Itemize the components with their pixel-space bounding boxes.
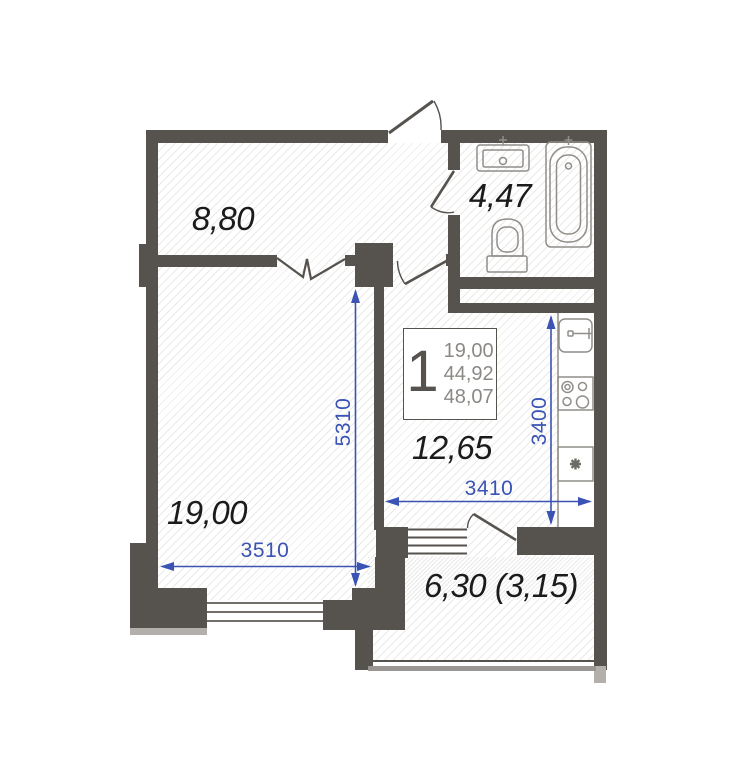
wall-hall-pier (355, 243, 393, 287)
wall-balcony-leg (355, 625, 373, 670)
wall-bath-bottom (458, 277, 594, 289)
wall-bottom-center-pier (352, 588, 405, 630)
wall-kitchen-bottom-right (517, 527, 594, 555)
badge-total-area: 48,07 (444, 386, 494, 409)
living-window-area (207, 600, 323, 628)
room-label-living: 19,00 (137, 494, 277, 532)
kitchen-counter-area (558, 313, 594, 527)
room-label-balcony: 6,30 (3,15) (401, 567, 601, 605)
dimension-label-kitchen-depth: 3400 (528, 371, 552, 471)
entrance-door (389, 101, 441, 133)
badge-area: 44,92 (444, 363, 494, 386)
room-label-kitchen: 12,65 (382, 429, 522, 467)
wall-top-right (441, 130, 607, 143)
dimension-label-kitchen-width: 3410 (429, 477, 549, 501)
dimension-label-living-width: 3510 (205, 539, 325, 563)
wall-bath-left-top (448, 143, 460, 170)
wall-window-right-pier (323, 600, 352, 630)
dimension-label-living-depth: 5310 (332, 372, 356, 472)
badge-living-area: 19,00 (444, 340, 494, 363)
wall-left-pier (139, 244, 158, 287)
wall-bottom-left-segment (158, 588, 207, 628)
wall-kitchen-door-jamb (446, 254, 460, 266)
wall-kitchen-bottom-left (376, 527, 408, 558)
room-label-hallway: 8,80 (153, 200, 293, 238)
wall-top-left (146, 130, 388, 143)
floor-plan: 1 19,00 44,92 48,07 (0, 0, 734, 759)
balcony-window-area (408, 528, 467, 556)
room-label-bathroom: 4,47 (430, 177, 570, 215)
wall-hall-living (158, 255, 277, 267)
room-count: 1 (406, 343, 438, 401)
apartment-info-box: 1 19,00 44,92 48,07 (403, 328, 497, 420)
wall-bottom-left-corner (130, 543, 158, 628)
wall-living-kitchen (374, 287, 384, 530)
wall-shaft-bottom (458, 303, 594, 313)
